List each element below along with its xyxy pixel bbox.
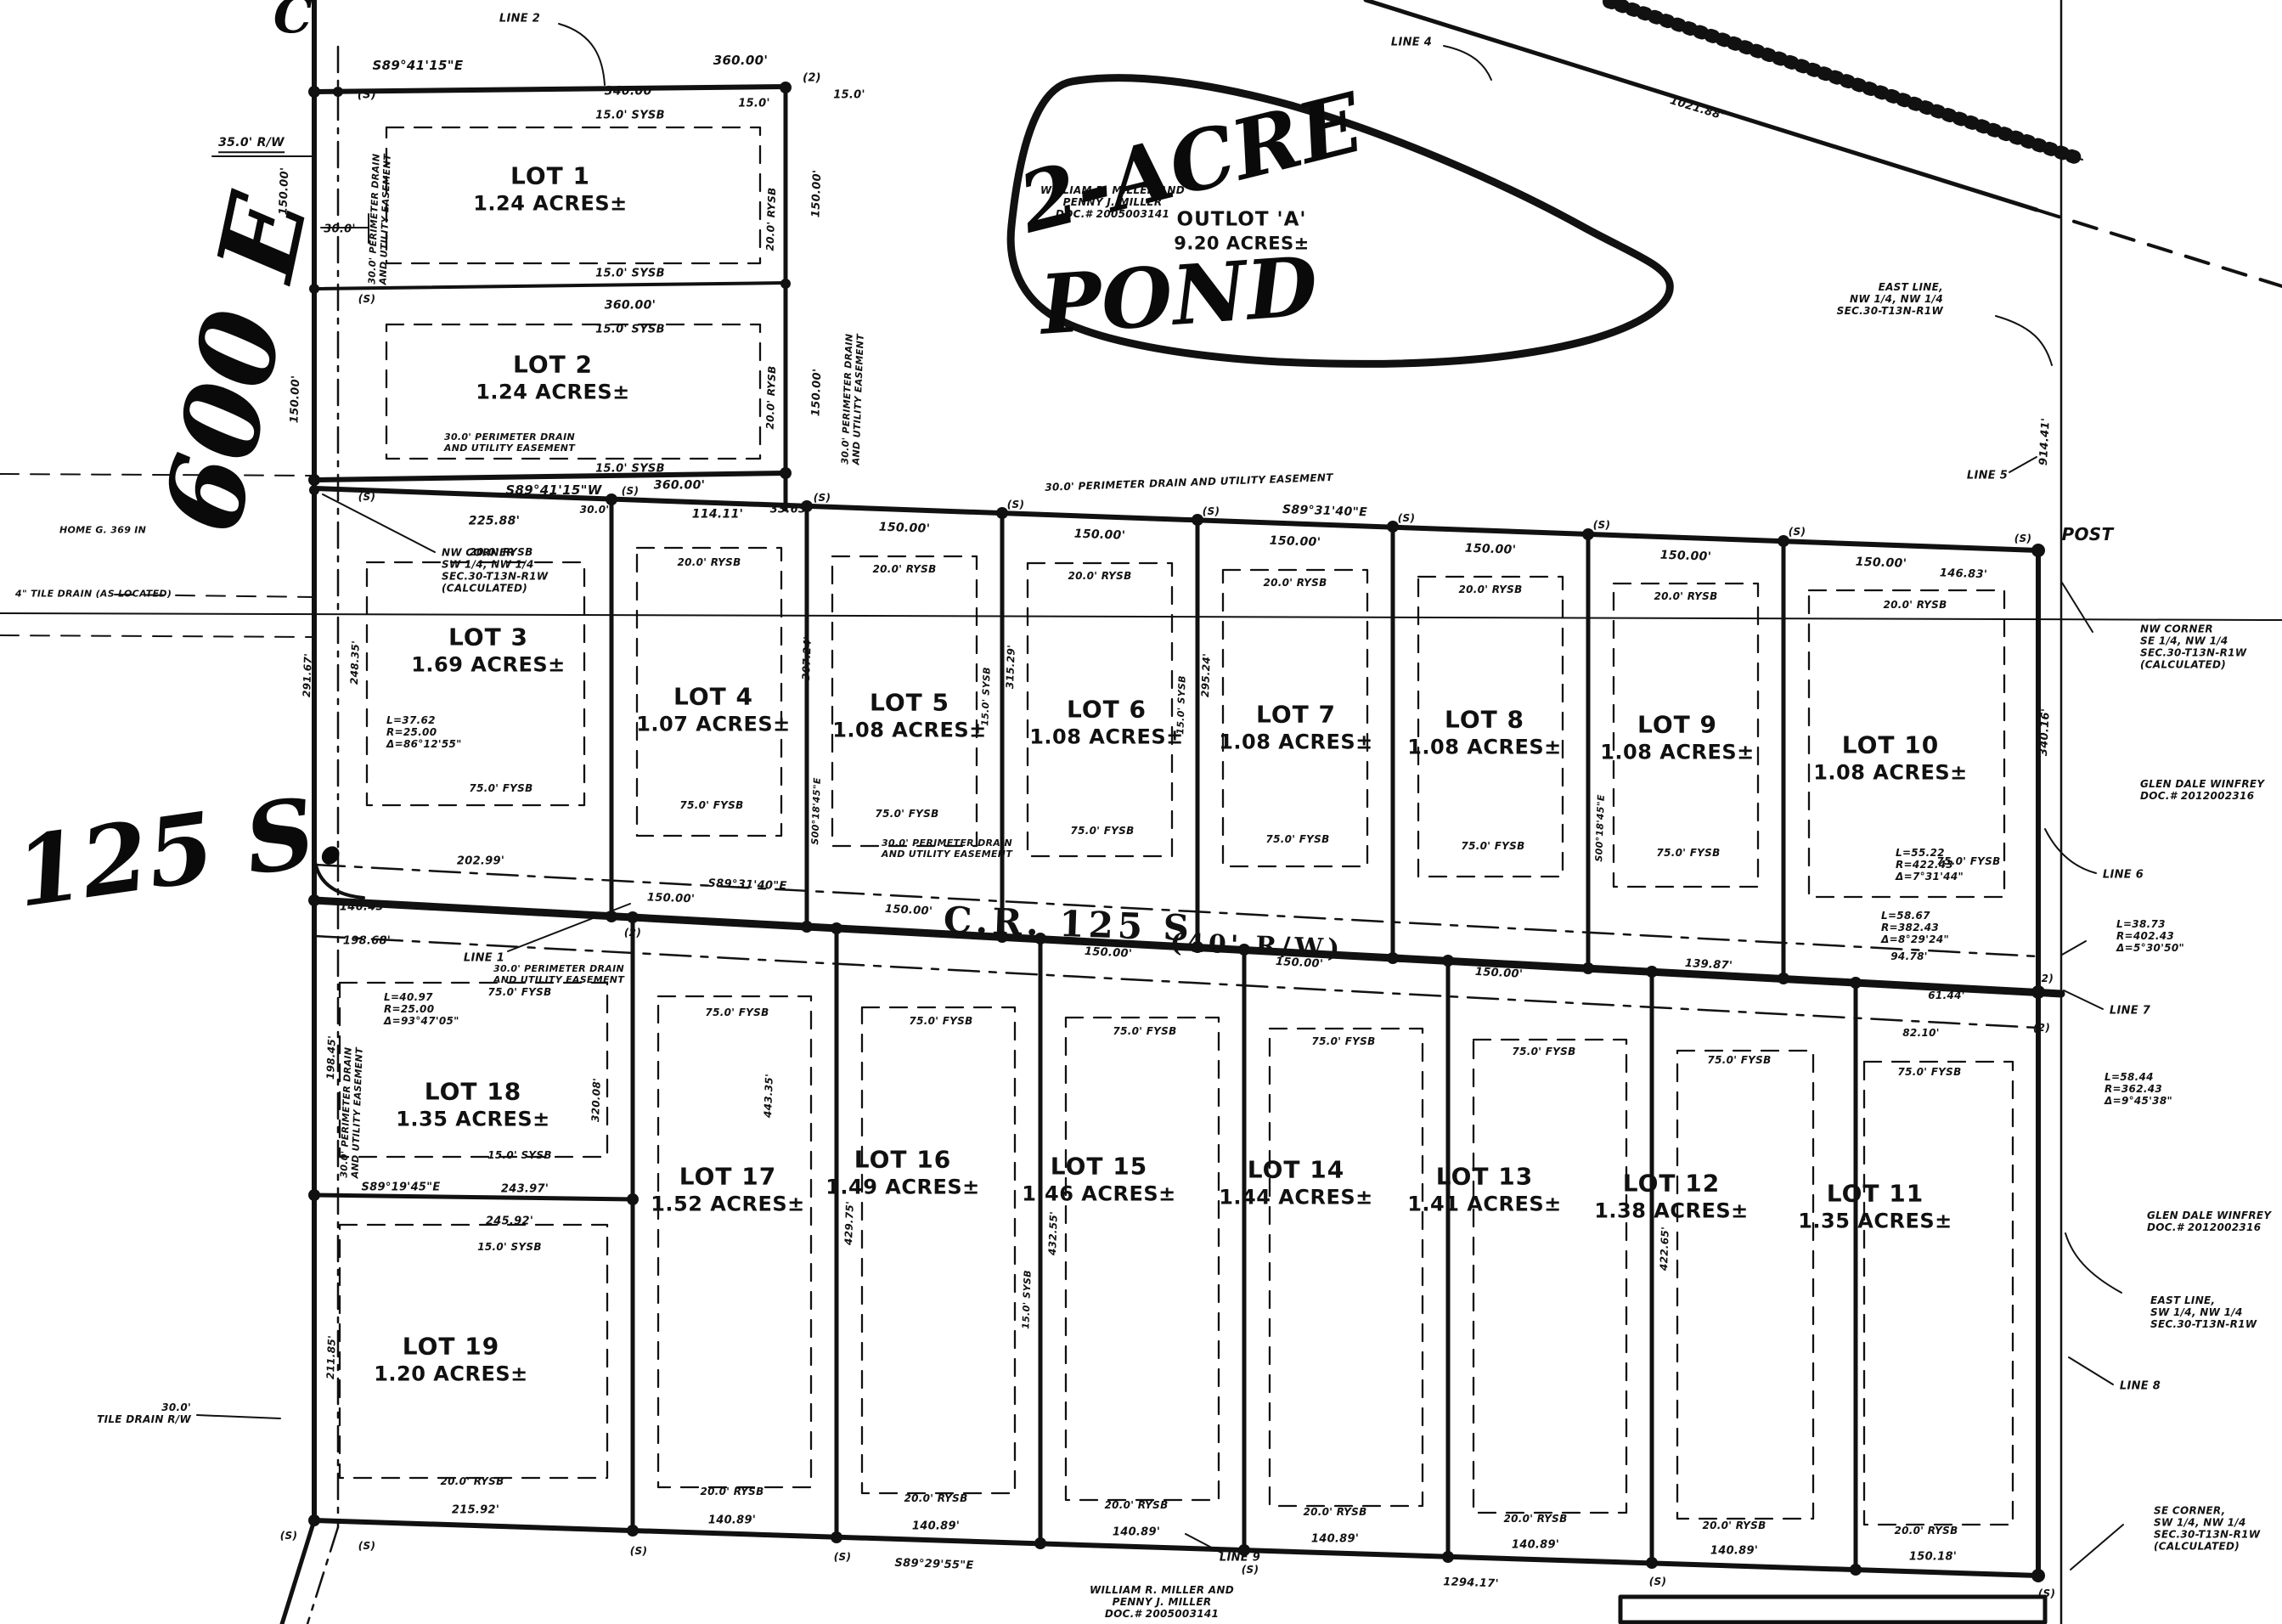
dimension-label: 75.0' FYSB: [1265, 833, 1329, 845]
dimension-label: 30.0' PERIMETER DRAIN AND UTILITY EASEME…: [444, 432, 575, 454]
dimension-label: 75.0' FYSB: [875, 808, 938, 820]
lot-1-acreage: 1.24 ACRES±: [473, 191, 628, 217]
dimension-label: 245.92': [486, 1215, 533, 1227]
dimension-label: 15.0' SYSB: [595, 267, 665, 279]
lot-15-name: LOT 15: [1051, 1153, 1147, 1181]
dimension-label: (S): [1649, 1576, 1667, 1587]
dimension-label: 15.0': [738, 97, 770, 110]
lot-17-acreage: 1.52 ACRES±: [651, 1192, 805, 1217]
dimension-label: 75.0' FYSB: [1070, 825, 1134, 837]
dimension-label: (S): [358, 491, 376, 503]
plat-map: LINE 2S89°41'15"E360.00'340.00'15.0' SYS…: [0, 0, 2282, 1624]
dimension-label: S89°29'55"E: [894, 1557, 974, 1573]
dimension-label: 140.89': [1113, 1525, 1160, 1538]
line4-label: LINE 4: [1391, 36, 1432, 48]
dimension-label: (S): [1242, 1564, 1259, 1576]
dimension-label: 291.67': [301, 653, 314, 698]
dimension-label: 15.0' SYSB: [595, 462, 665, 475]
dimension-label: 443.35': [762, 1074, 775, 1119]
dimension-label: 150.00': [885, 903, 933, 918]
dimension-label: 20.0' RYSB: [1458, 584, 1522, 595]
outlot-a-acreage: 9.20 ACRES±: [1174, 232, 1310, 254]
dimension-label: 75.0' FYSB: [487, 986, 551, 998]
dimension-label: 150.00': [809, 170, 824, 218]
dimension-label: 150.00': [879, 521, 931, 537]
outlot-a-label: OUTLOT 'A'9.20 ACRES±: [1174, 208, 1310, 255]
lot-18-name: LOT 18: [425, 1078, 521, 1106]
line5-label: LINE 5: [1967, 469, 2008, 482]
lot-10-name: LOT 10: [1842, 731, 1939, 759]
handwritten-pond-line2: POND: [1037, 238, 1321, 353]
dimension-label: 1294.17': [1443, 1576, 1499, 1591]
lot-8-acreage: 1.08 ACRES±: [1407, 735, 1562, 760]
dimension-label: 75.0' FYSB: [705, 1007, 769, 1018]
dimension-label: 15.0': [833, 88, 865, 101]
se-corner-note: SE CORNER, SW 1/4, NW 1/4 SEC.30-T13N-R1…: [2154, 1505, 2260, 1554]
lot-14-name: LOT 14: [1248, 1156, 1344, 1184]
lot-15-label: LOT 151.46 ACRES±: [1022, 1152, 1176, 1207]
lot-7-acreage: 1.08 ACRES±: [1219, 730, 1373, 755]
dimension-label: 150.00': [1270, 534, 1321, 550]
dimension-label: 360.00': [654, 479, 705, 493]
winfrey-note-2: GLEN DALE WINFREY DOC.# 2012002316: [2147, 1210, 2271, 1233]
dimension-label: S00°18'45"E: [1594, 794, 1608, 862]
lot-6-name: LOT 6: [1067, 696, 1147, 724]
lot-9-label: LOT 91.08 ACRES±: [1600, 710, 1755, 765]
dimension-label: 202.99': [457, 854, 504, 867]
dimension-label: 20.0' RYSB: [1303, 1506, 1366, 1518]
lot-2-acreage: 1.24 ACRES±: [476, 380, 630, 405]
outlot-a-name: OUTLOT 'A': [1177, 209, 1307, 231]
handwritten-mark: C: [273, 0, 313, 44]
dimension-label: 20.0' RYSB: [1883, 599, 1947, 611]
dimension-label: 4" TILE DRAIN (AS LOCATED): [15, 589, 172, 601]
dimension-label: 248.35': [348, 640, 362, 685]
dimension-label: (S): [2014, 533, 2032, 544]
east-line-nw-note: EAST LINE, NW 1/4, NW 1/4 SEC.30-T13N-R1…: [1837, 281, 1943, 317]
dimension-label: 75.0' FYSB: [1113, 1025, 1176, 1037]
post-label: POST: [2062, 525, 2114, 545]
dimension-label: (2): [2033, 1022, 2050, 1034]
dimension-label: (2): [624, 927, 641, 939]
dimension-label: (S): [358, 88, 376, 101]
dimension-label: 215.92': [452, 1503, 499, 1516]
dimension-label: 20.0' RYSB: [1894, 1525, 1958, 1537]
dimension-label: 198.68': [343, 934, 391, 947]
dimension-label: 20.0' RYSB: [872, 563, 936, 575]
dimension-label: HOME G. 369 IN: [59, 526, 146, 537]
dimension-label: (2): [2037, 973, 2054, 984]
lot-15-acreage: 1.46 ACRES±: [1022, 1181, 1176, 1207]
lot-17-label: LOT 171.52 ACRES±: [651, 1162, 805, 1217]
lot-12-acreage: 1.38 ACRES±: [1594, 1198, 1749, 1224]
dimension-label: 146.83': [1940, 567, 1988, 581]
lot-3-label: LOT 31.69 ACRES±: [411, 623, 566, 678]
dimension-label: 140.89': [1512, 1538, 1559, 1551]
labels-layer: LINE 2S89°41'15"E360.00'340.00'15.0' SYS…: [0, 0, 2282, 1624]
lot-6-label: LOT 61.08 ACRES±: [1029, 695, 1184, 750]
lot-2-name: LOT 2: [513, 351, 593, 379]
dimension-label: 75.0' FYSB: [1897, 1066, 1961, 1078]
dimension-label: (S): [1398, 512, 1416, 524]
dimension-label: 150.00': [1074, 527, 1126, 544]
dimension-label: S89°19'45"E: [361, 1181, 440, 1193]
dimension-label: 140.89': [1311, 1532, 1359, 1545]
dimension-label: 150.00': [1085, 945, 1133, 961]
dimension-label: 15.0' SYSB: [477, 1241, 542, 1253]
dimension-label: 150.00': [1465, 542, 1517, 558]
line6-label: LINE 6: [2103, 868, 2144, 881]
dimension-label: 30.0' PERIMETER DRAIN AND UTILITY EASEME…: [493, 964, 624, 986]
dimension-label: 20.0' RYSB: [1263, 577, 1327, 589]
dimension-label: 20.0' RYSB: [764, 187, 779, 251]
line8-label: LINE 8: [2120, 1379, 2161, 1392]
dimension-label: 75.0' FYSB: [679, 799, 743, 811]
dimension-label: 30.0' PERIMETER DRAIN AND UTILITY EASEME…: [367, 153, 393, 285]
line9-label: LINE 9: [1220, 1551, 1260, 1564]
dimension-label: 20.0' RYSB: [440, 1475, 504, 1487]
dimension-label: (S): [630, 1545, 648, 1557]
dimension-label: S89°31'40"E: [707, 877, 787, 894]
dimension-label: (S): [358, 1540, 376, 1552]
dimension-label: 150.00': [1276, 956, 1324, 971]
lot-7-name: LOT 7: [1256, 701, 1336, 729]
dimension-label: (S): [1789, 526, 1806, 538]
line7-label: LINE 7: [2110, 1004, 2150, 1017]
dimension-label: 20.0' RYSB: [469, 546, 532, 558]
dimension-label: 914.41': [2037, 418, 2053, 466]
dimension-label: (S): [280, 1530, 298, 1542]
lot-13-name: LOT 13: [1436, 1163, 1533, 1191]
dimension-label: 211.85': [324, 1335, 338, 1380]
dimension-label: 20.0' RYSB: [1068, 570, 1131, 582]
dimension-label: 20.0' RYSB: [700, 1486, 763, 1497]
lot-11-label: LOT 111.35 ACRES±: [1798, 1179, 1952, 1234]
dimension-label: 146.43': [340, 900, 387, 913]
tile-drain-rw-note: 30.0' TILE DRAIN R/W: [97, 1401, 191, 1425]
dimension-label: 75.0' FYSB: [1512, 1046, 1575, 1057]
dimension-label: 150.00': [647, 891, 696, 905]
dimension-label: (S): [2038, 1587, 2056, 1599]
lot-3-name: LOT 3: [448, 623, 528, 651]
dimension-label: (S): [1203, 505, 1220, 517]
lot-4-label: LOT 41.07 ACRES±: [636, 682, 791, 737]
dimension-label: 30.0' PERIMETER DRAIN AND UTILITY EASEME…: [840, 333, 866, 465]
dimension-label: 422.65': [1658, 1226, 1671, 1272]
dimension-label: 140.89': [912, 1520, 960, 1532]
lot-12-name: LOT 12: [1623, 1170, 1720, 1198]
dimension-label: 30.0' PERIMETER DRAIN AND UTILITY EASEME…: [339, 1046, 365, 1178]
lot-19-acreage: 1.20 ACRES±: [374, 1362, 528, 1387]
dimension-label: 75.0' FYSB: [1311, 1035, 1375, 1047]
dimension-label: 225.88': [469, 515, 520, 529]
dimension-label: 1021.88': [1668, 94, 1725, 123]
lot-18-label: LOT 181.35 ACRES±: [396, 1077, 550, 1132]
lot-5-acreage: 1.08 ACRES±: [832, 718, 987, 743]
dimension-label: (S): [814, 492, 831, 504]
dimension-label: 360.00': [713, 54, 769, 69]
lot-1-name: LOT 1: [510, 162, 590, 190]
line2-label: LINE 2: [499, 12, 540, 25]
dimension-label: 150.00': [1660, 549, 1712, 565]
dimension-label: 139.87': [1685, 957, 1733, 973]
lot-16-name: LOT 16: [854, 1146, 951, 1174]
lot-8-label: LOT 81.08 ACRES±: [1407, 705, 1562, 760]
dimension-label: (S): [1007, 499, 1025, 510]
dimension-label: 61.44': [1928, 990, 1964, 1001]
dimension-label: 150.00': [809, 369, 824, 417]
dimension-label: 75.0' FYSB: [1707, 1054, 1771, 1066]
dimension-label: L=55.22 R=422.43 Δ=7°31'44": [1896, 847, 1964, 882]
dimension-label: 30.0' PERIMETER DRAIN AND UTILITY EASEME…: [882, 838, 1012, 860]
dimension-label: 432.55': [1046, 1211, 1060, 1256]
dimension-label: 140.89': [1710, 1544, 1758, 1557]
dimension-label: 15.0' SYSB: [595, 323, 665, 336]
lot-4-acreage: 1.07 ACRES±: [636, 712, 791, 737]
lot-13-label: LOT 131.41 ACRES±: [1407, 1162, 1562, 1217]
dimension-label: (S): [1593, 519, 1611, 531]
lot-16-label: LOT 161.49 ACRES±: [825, 1145, 980, 1200]
dimension-label: 20.0' RYSB: [1702, 1520, 1766, 1531]
handwritten-road-600e: 600 E: [140, 184, 332, 542]
dimension-label: S89°41'15"W: [505, 483, 601, 499]
lot-8-name: LOT 8: [1445, 706, 1524, 734]
dimension-label: 82.10': [1902, 1027, 1939, 1039]
dimension-label: 315.29': [1004, 645, 1017, 690]
dimension-label: 150.00': [1856, 555, 1907, 572]
lot-13-acreage: 1.41 ACRES±: [1407, 1192, 1562, 1217]
dimension-label: L=37.62 R=25.00 Δ=86°12'55": [386, 714, 462, 750]
dimension-label: 20.0' RYSB: [904, 1492, 967, 1504]
dimension-label: 307.24': [800, 636, 814, 681]
east-line-sw-note: EAST LINE, SW 1/4, NW 1/4 SEC.30-T13N-R1…: [2150, 1294, 2257, 1330]
dimension-label: S00°18'45"E: [810, 777, 824, 845]
dimension-label: 20.0' RYSB: [1654, 590, 1717, 602]
dimension-label: 75.0' FYSB: [469, 782, 532, 794]
lot-17-name: LOT 17: [679, 1163, 776, 1191]
lot-16-acreage: 1.49 ACRES±: [825, 1175, 980, 1200]
dimension-label: 340.16': [2037, 708, 2053, 757]
dimension-label: 30.0' PERIMETER DRAIN AND UTILITY EASEME…: [1045, 471, 1333, 493]
dimension-label: 243.97': [501, 1182, 549, 1195]
dimension-label: (S): [622, 485, 640, 497]
dimension-label: 75.0' FYSB: [1461, 840, 1524, 852]
dimension-label: 15.0' SYSB: [487, 1149, 552, 1161]
dimension-label: (S): [834, 1551, 852, 1563]
dimension-label: 360.00': [605, 299, 656, 313]
dimension-label: 75.0' FYSB: [909, 1015, 972, 1027]
dimension-label: 295.24': [1199, 653, 1213, 698]
dimension-label: S89°31'40"E: [1282, 503, 1367, 520]
lot-10-label: LOT 101.08 ACRES±: [1813, 730, 1968, 786]
road-cr125s-label: C.R. 125 S: [943, 899, 1194, 950]
dimension-label: 150.18': [1909, 1550, 1957, 1563]
dimension-label: 30.0': [580, 504, 610, 516]
dimension-label: 15.0' SYSB: [595, 109, 665, 121]
dimension-label: S89°41'15"E: [373, 59, 464, 74]
dimension-label: 114.11': [692, 508, 743, 522]
dimension-label: 150.00': [1475, 966, 1524, 981]
dimension-label: (2): [803, 71, 821, 84]
lot-9-name: LOT 9: [1637, 711, 1717, 739]
lot-6-acreage: 1.08 ACRES±: [1029, 725, 1184, 750]
dimension-label: 340.00': [605, 85, 656, 99]
dimension-label: L=40.97 R=25.00 Δ=93°47'05": [384, 991, 459, 1027]
lot-12-label: LOT 121.38 ACRES±: [1594, 1169, 1749, 1224]
dimension-label: 140.89': [708, 1514, 756, 1526]
dimension-label: 20.0' RYSB: [1503, 1513, 1567, 1525]
dimension-label: 320.08': [589, 1078, 603, 1123]
owner-note-bottom: WILLIAM R. MILLER AND PENNY J. MILLER DO…: [1090, 1584, 1234, 1620]
dimension-label: 35.0' R/W: [218, 136, 285, 153]
nw-corner-se-note: NW CORNER SE 1/4, NW 1/4 SEC.30-T13N-R1W…: [2140, 623, 2246, 672]
lot-14-acreage: 1.44 ACRES±: [1219, 1185, 1373, 1210]
dimension-label: (S): [358, 293, 376, 305]
dimension-label: 20.0' RYSB: [677, 556, 741, 568]
dimension-label: L=38.73 R=402.43 Δ=5°30'50": [2116, 918, 2184, 954]
dimension-label: 33.63: [770, 503, 807, 516]
dimension-label: 198.45': [324, 1035, 338, 1080]
dimension-label: 20.0' RYSB: [764, 365, 779, 430]
lot-5-label: LOT 51.08 ACRES±: [832, 688, 987, 743]
lot-5-name: LOT 5: [870, 689, 949, 717]
lot-11-name: LOT 11: [1827, 1180, 1924, 1208]
lot-2-label: LOT 21.24 ACRES±: [476, 350, 630, 405]
lot-14-label: LOT 141.44 ACRES±: [1219, 1155, 1373, 1210]
lot-19-name: LOT 19: [403, 1333, 499, 1361]
dimension-label: 75.0' FYSB: [1656, 847, 1720, 859]
lot-9-acreage: 1.08 ACRES±: [1600, 740, 1755, 765]
handwritten-road-125s: 125 S.: [8, 773, 351, 929]
lot-3-acreage: 1.69 ACRES±: [411, 652, 566, 678]
lot-18-acreage: 1.35 ACRES±: [396, 1107, 550, 1132]
lot-1-label: LOT 11.24 ACRES±: [473, 161, 628, 217]
dimension-label: 15.0' SYSB: [1021, 1270, 1034, 1329]
dimension-label: L=58.44 R=362.43 Δ=9°45'38": [2105, 1071, 2172, 1107]
dimension-label: 429.75': [842, 1201, 856, 1246]
dimension-label: 94.78': [1890, 950, 1927, 962]
lot-11-acreage: 1.35 ACRES±: [1798, 1209, 1952, 1234]
winfrey-note-1: GLEN DALE WINFREY DOC.# 2012002316: [2140, 778, 2264, 802]
lot-19-label: LOT 191.20 ACRES±: [374, 1332, 528, 1387]
lot-7-label: LOT 71.08 ACRES±: [1219, 700, 1373, 755]
dimension-label: 20.0' RYSB: [1104, 1499, 1168, 1511]
lot-10-acreage: 1.08 ACRES±: [1813, 760, 1968, 786]
lot-4-name: LOT 4: [673, 683, 753, 711]
dimension-label: L=58.67 R=382.43 Δ=8°29'24": [1881, 910, 1949, 945]
